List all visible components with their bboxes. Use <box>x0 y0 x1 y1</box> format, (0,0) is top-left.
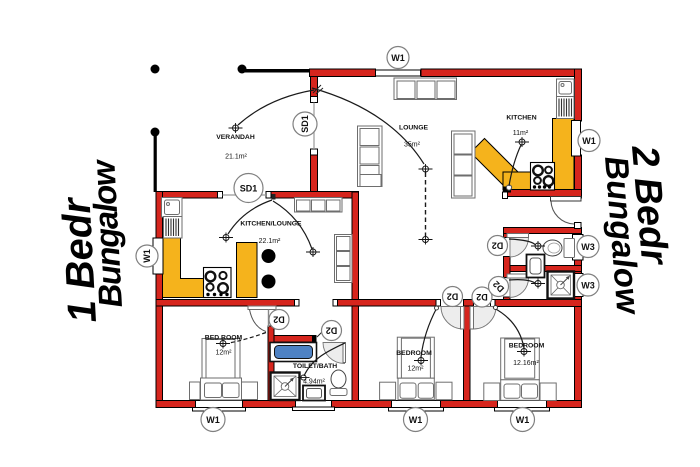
svg-text:D2: D2 <box>492 241 504 251</box>
svg-text:D2: D2 <box>447 292 459 302</box>
svg-text:W1: W1 <box>391 53 405 63</box>
svg-text:W1: W1 <box>516 415 530 425</box>
svg-text:11m²: 11m² <box>513 130 529 137</box>
svg-text:SD1: SD1 <box>300 115 310 133</box>
svg-text:D2: D2 <box>273 315 285 325</box>
svg-text:Bungalow: Bungalow <box>84 157 129 308</box>
svg-text:12m²: 12m² <box>216 350 233 357</box>
svg-text:BEDROOM: BEDROOM <box>509 343 545 350</box>
svg-text:4.94m²: 4.94m² <box>303 379 325 386</box>
svg-text:W3: W3 <box>581 281 595 291</box>
svg-text:21.1m²: 21.1m² <box>225 154 247 161</box>
svg-text:W1: W1 <box>582 136 596 146</box>
svg-text:LOUNGE: LOUNGE <box>399 125 429 132</box>
svg-text:W3: W3 <box>581 242 595 252</box>
svg-text:SD1: SD1 <box>240 184 258 194</box>
svg-text:D2: D2 <box>476 292 488 302</box>
svg-text:22.1m²: 22.1m² <box>259 238 281 245</box>
svg-text:W1: W1 <box>142 249 152 263</box>
svg-text:W1: W1 <box>206 415 220 425</box>
svg-text:TOILET/BATH: TOILET/BATH <box>293 363 337 370</box>
svg-text:BEDROOM: BEDROOM <box>396 350 432 357</box>
svg-text:12.16m²: 12.16m² <box>513 360 539 367</box>
svg-text:VERANDAH: VERANDAH <box>216 134 255 141</box>
svg-text:D2: D2 <box>326 326 338 336</box>
svg-text:35m²: 35m² <box>404 142 421 149</box>
svg-text:KITCHEN: KITCHEN <box>506 115 536 122</box>
svg-text:12m²: 12m² <box>408 366 425 373</box>
svg-text:W1: W1 <box>409 415 423 425</box>
svg-text:BED ROOM: BED ROOM <box>205 335 243 342</box>
svg-text:KITCHEN/LOUNGE: KITCHEN/LOUNGE <box>240 221 302 228</box>
